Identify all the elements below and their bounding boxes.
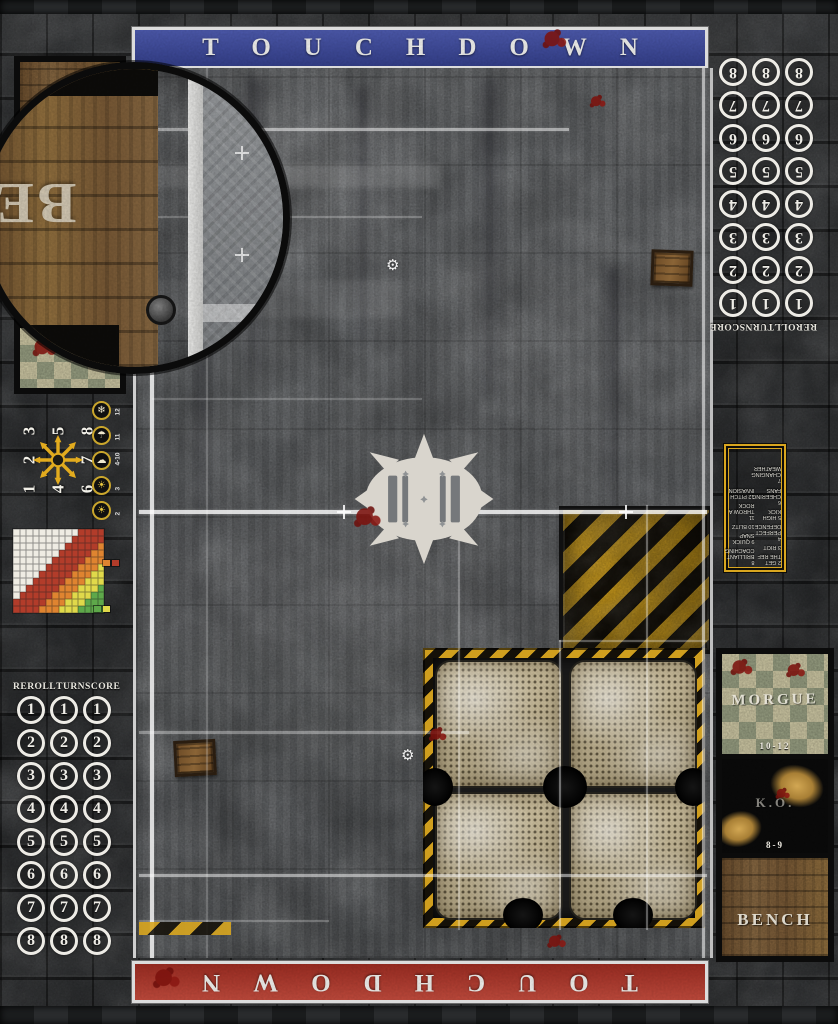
range-legend-bottom (94, 606, 110, 612)
gear-marker-icon: ⚙ (386, 256, 399, 274)
gasket-blob (675, 768, 705, 806)
scatter-number-label: 4 (48, 485, 68, 494)
track-circle-7: 7 (752, 91, 780, 119)
kickoff-entry-6: 6 CHEERING FANS (756, 486, 781, 504)
range-legend-chip (112, 560, 119, 566)
track-header-score: SCORE (710, 321, 745, 331)
track-header-score: SCORE (85, 682, 120, 692)
ko-zone-right: K.O. 8-9 (722, 759, 828, 853)
track-circle-5: 5 (17, 828, 45, 856)
track-circle-3: 3 (50, 762, 78, 790)
track-circle-4: 4 (785, 190, 813, 218)
kickoff-entry-11: 11 THROW A ROCK (729, 502, 754, 520)
touchdown-banner-bottom-label: TOUCHDOWN (169, 968, 671, 996)
pitch-cross-mark (619, 505, 633, 519)
grunge-texture (563, 510, 709, 650)
turn-track-grid: 111222333444555666777888 (12, 696, 116, 955)
blood-splatter (774, 787, 792, 801)
wooden-crate (173, 739, 217, 777)
grunge-texture (722, 858, 828, 956)
touchdown-banner-top-label: TOUCHDOWN (169, 34, 671, 62)
turn-track-grid: 111222333444555666777888 (714, 58, 818, 317)
spiked-ball-logo (353, 426, 495, 572)
track-circle-3: 3 (17, 762, 45, 790)
mesh-panel (569, 660, 697, 788)
kickoff-entry-12: 12 PITCH INVASION (729, 486, 754, 498)
blood-splatter (728, 658, 756, 678)
trapdoor-grate (423, 648, 705, 928)
kickoff-entry-3: 3 RIOT (756, 544, 781, 550)
blood-splatter (351, 505, 385, 531)
range-cell-beyond-range (98, 585, 105, 592)
weather-roll-label: 3 (115, 481, 122, 491)
ko-dice-range: 8-9 (722, 840, 828, 850)
track-circle-4: 4 (50, 795, 78, 823)
track-circle-8: 8 (17, 927, 45, 955)
track-circle-8: 8 (785, 58, 813, 86)
bench-zone-right: BENCH (722, 858, 828, 956)
weather-roll-label: 12 (115, 406, 122, 416)
pitch-cross-mark (337, 505, 351, 519)
scatter-number-label: 5 (48, 427, 68, 436)
track-circle-4: 4 (752, 190, 780, 218)
track-circle-1: 1 (752, 289, 780, 317)
pass-range-ruler (12, 528, 105, 614)
range-cell-long-pass (98, 550, 105, 557)
turn-track-header: REROLLTURNSCORE (12, 682, 116, 692)
range-cell-long-pass (98, 543, 105, 550)
magnified-pitch-line (203, 304, 283, 322)
blood-splatter (540, 28, 570, 52)
weather-table: ❄12☂11☁4-10☀3☀2 (92, 400, 123, 521)
blood-splatter (427, 726, 449, 744)
track-header-turn: TURN (56, 682, 85, 692)
kickoff-entry-9: 9 QUICK SNAP (729, 532, 754, 544)
range-cell-long-bomb (98, 578, 105, 585)
kickoff-column-1: 2 GET THE REF3 RIOT4 PERFECT DEFENCE5 HI… (756, 451, 781, 565)
track-header-turn: TURN (745, 321, 774, 331)
kickoff-entry-8: 8 BRILLIANT COACHING (729, 547, 754, 565)
kickoff-entry-2: 2 GET THE REF (756, 553, 781, 565)
track-header-reroll: REROLL (774, 321, 817, 331)
turn-track-left: REROLLTURNSCORE111222333444555666777888 (12, 682, 116, 955)
pitch-line (139, 731, 469, 734)
pitch-line (152, 398, 422, 400)
track-circle-3: 3 (719, 223, 747, 251)
hazard-stripe-square (559, 506, 713, 654)
range-legend-chip (103, 606, 110, 612)
track-circle-2: 2 (17, 729, 45, 757)
sun-cloud-icon: ☀ (92, 476, 111, 495)
track-circle-3: 3 (785, 223, 813, 251)
track-circle-5: 5 (785, 157, 813, 185)
blood-bowl-pitch-mat: TOUCHDOWN (0, 0, 838, 1024)
track-circle-4: 4 (83, 795, 111, 823)
track-circle-2: 2 (785, 256, 813, 284)
weather-roll-label: 4-10 (115, 456, 122, 466)
track-circle-6: 6 (752, 124, 780, 152)
gear-marker-icon: ⚙ (401, 746, 414, 764)
touchdown-banner-bottom: TOUCHDOWN (132, 961, 708, 1003)
magnified-frame-edge (0, 69, 158, 96)
end-zone-line (139, 874, 707, 877)
track-circle-2: 2 (50, 729, 78, 757)
weather-row-4-10: ☁4-10 (92, 450, 123, 471)
kickoff-entry-10: 10 BLITZ (729, 523, 754, 529)
range-legend-chip (103, 560, 110, 566)
grime-streak (606, 268, 620, 508)
grunge-texture (437, 662, 561, 786)
track-circle-4: 4 (17, 795, 45, 823)
weather-roll-label: 11 (115, 431, 122, 441)
pitch-line (559, 640, 561, 930)
track-circle-3: 3 (83, 762, 111, 790)
track-circle-7: 7 (17, 894, 45, 922)
kickoff-column-2: 8 BRILLIANT COACHING9 QUICK SNAP10 BLITZ… (729, 451, 754, 565)
kickoff-entry-4: 4 PERFECT DEFENCE (756, 523, 781, 541)
track-circle-1: 1 (17, 696, 45, 724)
track-circle-5: 5 (50, 828, 78, 856)
weather-row-11: ☂11 (92, 425, 123, 446)
grate-frame (433, 658, 695, 918)
range-cell-beyond-range (98, 599, 105, 606)
track-circle-1: 1 (719, 289, 747, 317)
track-circle-6: 6 (83, 861, 111, 889)
blood-splatter (784, 662, 808, 680)
track-circle-1: 1 (83, 696, 111, 724)
touchdown-banner-top: TOUCHDOWN (132, 27, 708, 69)
range-cell-short-pass (98, 536, 105, 543)
range-legend-mid (103, 560, 119, 566)
weather-row-12: ❄12 (92, 400, 123, 421)
range-cell-beyond-range (98, 592, 105, 599)
track-circle-2: 2 (83, 729, 111, 757)
track-circle-8: 8 (83, 927, 111, 955)
blood-splatter (150, 966, 184, 992)
magnified-frame-edge (0, 325, 119, 367)
grunge-texture (437, 794, 561, 918)
grime-streak (481, 78, 499, 398)
track-circle-5: 5 (752, 157, 780, 185)
pitch-line (646, 505, 648, 930)
kickoff-entry-7: 7 CHANGING WEATHER (756, 465, 781, 483)
morgue-zone-right: MORGUE 10-12 (722, 654, 828, 754)
track-circle-7: 7 (785, 91, 813, 119)
scatter-number-label: 1 (19, 485, 39, 494)
blood-splatter (545, 934, 569, 950)
grunge-texture (563, 510, 709, 650)
track-circle-1: 1 (785, 289, 813, 317)
magnified-pitch-metal (203, 69, 283, 367)
track-circle-6: 6 (719, 124, 747, 152)
turn-track-right: REROLLTURNSCORE111222333444555666777888 (714, 58, 818, 331)
grunge-texture (563, 510, 709, 650)
track-circle-8: 8 (719, 58, 747, 86)
mat-bottom-edge (0, 1006, 838, 1024)
track-header-reroll: REROLL (13, 682, 56, 692)
range-cell-short-pass (98, 529, 105, 536)
pitch-cross-mark (235, 248, 249, 262)
mesh-panel (435, 792, 563, 920)
track-circle-1: 1 (50, 696, 78, 724)
track-circle-4: 4 (719, 190, 747, 218)
track-circle-7: 7 (50, 894, 78, 922)
track-circle-7: 7 (83, 894, 111, 922)
track-circle-5: 5 (83, 828, 111, 856)
mat-top-edge (0, 0, 838, 14)
pitch-line (559, 640, 707, 642)
magnified-bench-letters: BE (0, 170, 76, 237)
kickoff-table: 2 GET THE REF3 RIOT4 PERFECT DEFENCE5 HI… (724, 444, 786, 572)
track-circle-6: 6 (17, 861, 45, 889)
morgue-dice-range: 10-12 (722, 741, 828, 751)
wooden-crate (650, 249, 693, 286)
blood-splatter (588, 94, 608, 110)
mesh-panel (435, 660, 563, 788)
track-circle-2: 2 (752, 256, 780, 284)
track-circle-5: 5 (719, 157, 747, 185)
chaos-star-scatter-icon (33, 435, 83, 485)
track-circle-6: 6 (785, 124, 813, 152)
range-cell-long-bomb (98, 571, 105, 578)
pitch-cross-mark (235, 146, 249, 160)
track-circle-7: 7 (719, 91, 747, 119)
track-circle-8: 8 (752, 58, 780, 86)
rain-icon: ☂ (92, 426, 111, 445)
track-circle-2: 2 (719, 256, 747, 284)
weather-roll-label: 2 (115, 506, 122, 516)
gasket-blob (543, 766, 587, 808)
morgue-label: MORGUE (722, 691, 828, 710)
magnifier-lens: BE (0, 62, 290, 374)
grunge-texture (571, 662, 695, 786)
track-circle-6: 6 (50, 861, 78, 889)
dugout-right: MORGUE 10-12 K.O. 8-9 BENCH (716, 648, 834, 962)
weather-row-3: ☀3 (92, 475, 123, 496)
weather-row-2: ☀2 (92, 500, 123, 521)
cloudy-icon: ☁ (92, 451, 111, 470)
hazard-stripe-strip (139, 922, 231, 935)
bench-label: BENCH (722, 910, 828, 930)
track-circle-8: 8 (50, 927, 78, 955)
sun-icon: ☀ (92, 501, 111, 520)
kickoff-entry-5: 5 HIGH KICK (756, 508, 781, 520)
magnified-sideline (188, 69, 203, 367)
track-circle-3: 3 (752, 223, 780, 251)
snowfall-icon: ❄ (92, 401, 111, 420)
range-legend-chip (94, 606, 101, 612)
scatter-number-label: 3 (19, 427, 39, 436)
gasket-blob (503, 898, 543, 928)
turn-track-header: REROLLTURNSCORE (714, 321, 818, 331)
